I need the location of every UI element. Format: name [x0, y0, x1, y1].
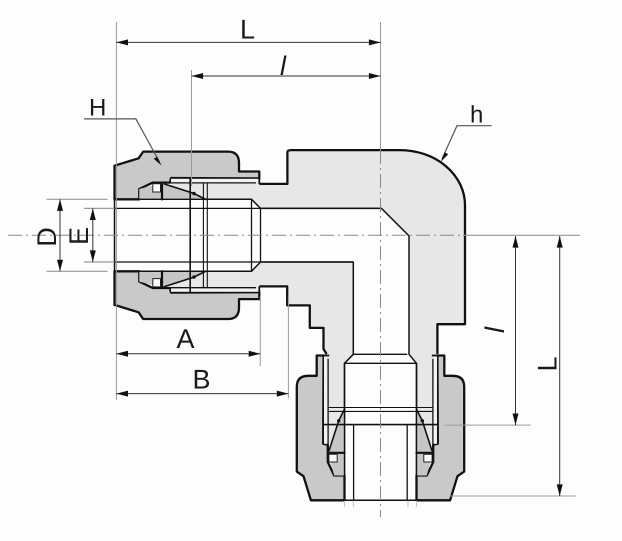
svg-text:l: l: [480, 326, 510, 333]
svg-text:D: D: [32, 227, 62, 247]
svg-text:H: H: [89, 95, 106, 122]
svg-text:B: B: [193, 365, 211, 395]
svg-text:E: E: [64, 227, 94, 245]
svg-text:h: h: [470, 101, 483, 128]
svg-text:L: L: [533, 356, 563, 371]
svg-text:l: l: [280, 51, 287, 81]
svg-text:A: A: [177, 324, 195, 354]
svg-text:L: L: [240, 15, 255, 45]
